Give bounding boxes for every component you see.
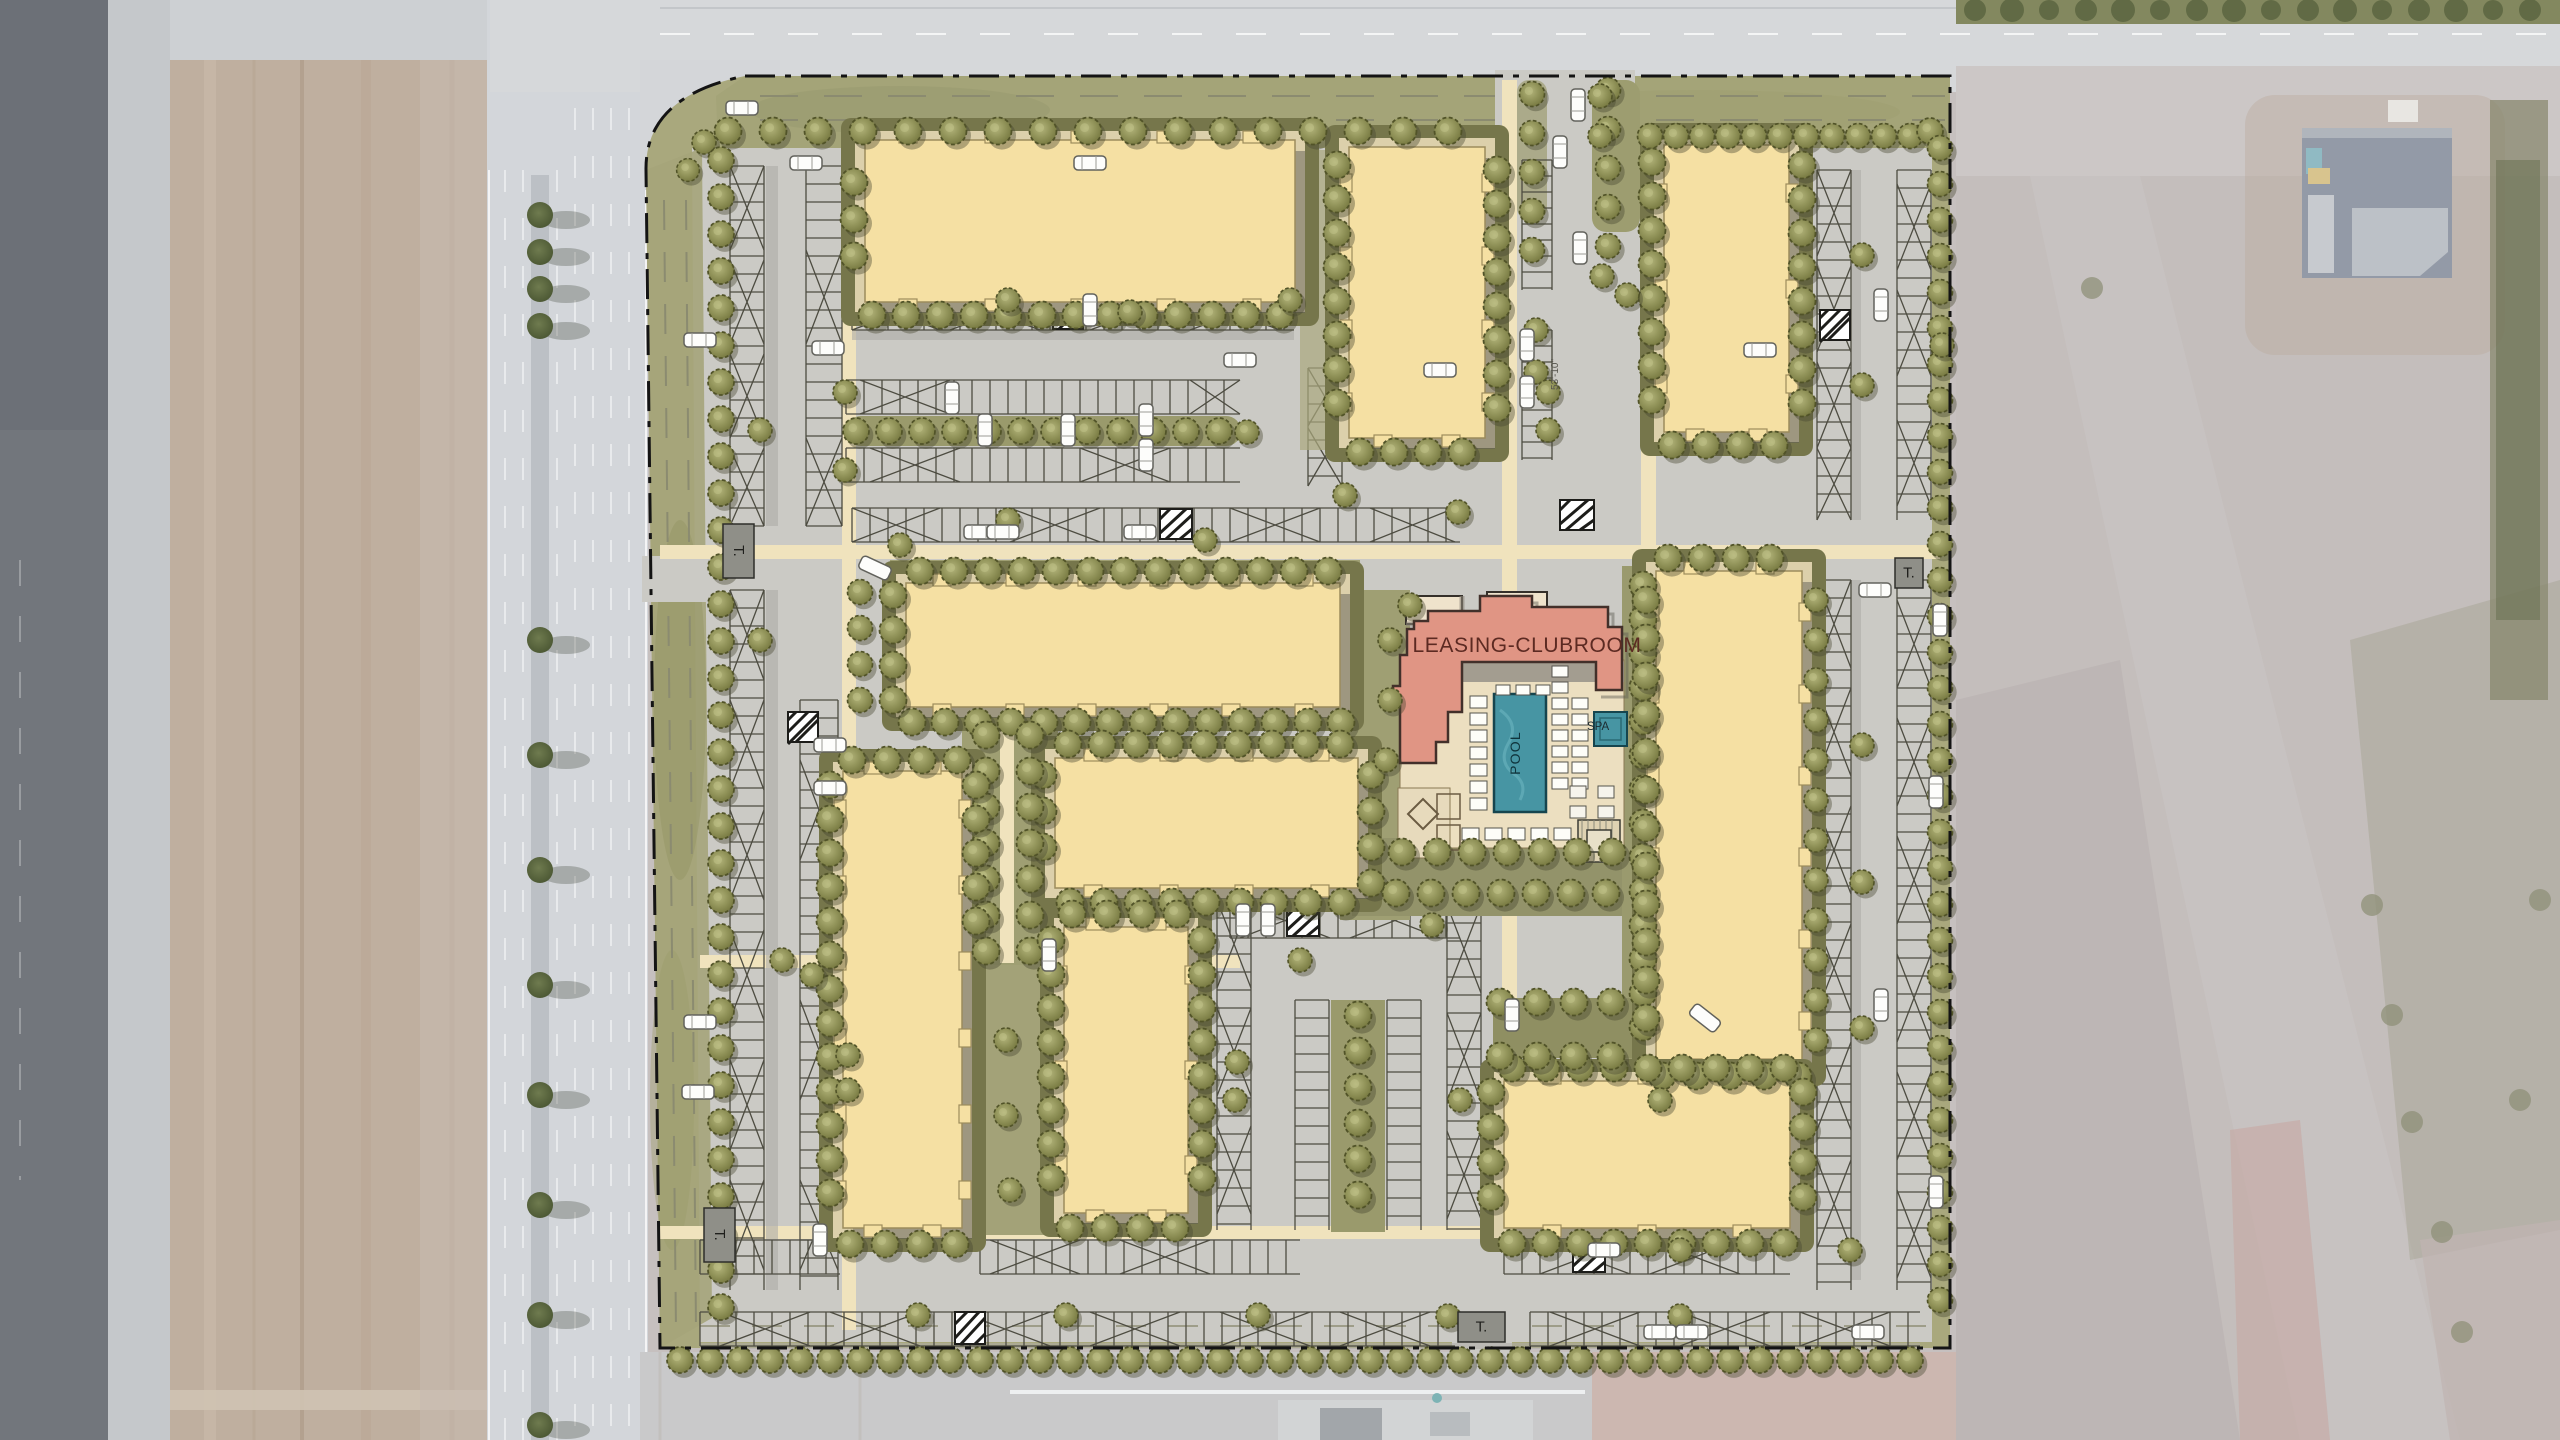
svg-text:T.: T. xyxy=(711,1229,728,1241)
svg-text:53'-10": 53'-10" xyxy=(1550,359,1561,390)
svg-text:POOL: POOL xyxy=(1507,731,1523,775)
svg-text:LEASING-CLUBROOM: LEASING-CLUBROOM xyxy=(1413,634,1642,657)
svg-text:T.: T. xyxy=(1476,1319,1488,1336)
svg-text:SPA: SPA xyxy=(1587,721,1609,733)
svg-text:T.: T. xyxy=(1903,565,1915,582)
svg-text:T.: T. xyxy=(730,545,747,557)
